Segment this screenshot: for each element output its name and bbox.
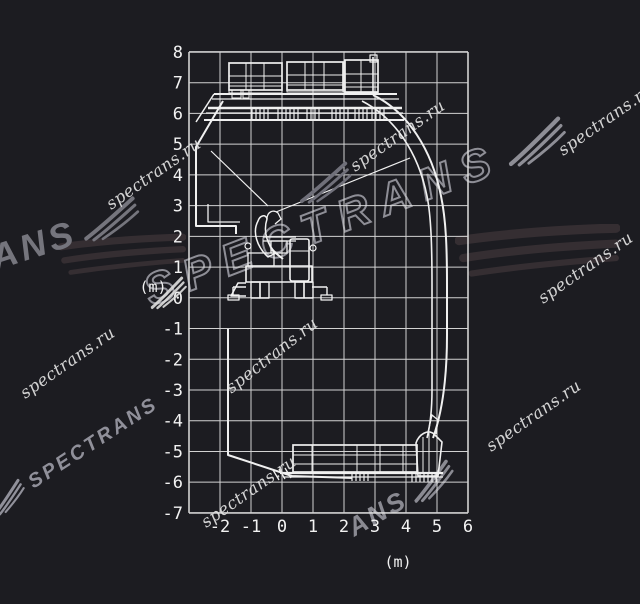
mirror-left <box>245 243 251 249</box>
tick-label: 4 <box>401 517 411 537</box>
working-range-chart: -2-10123456876543210-1-2-3-4-5-6-7 (m) (… <box>0 0 640 604</box>
envelope-left-step <box>208 204 240 222</box>
tick-label: 6 <box>173 104 183 124</box>
tick-label: -7 <box>163 504 183 524</box>
wheel <box>295 282 304 298</box>
tick-label: 6 <box>463 517 473 537</box>
tick-label: -2 <box>210 517 230 537</box>
tick-label: -3 <box>163 381 183 401</box>
wheel <box>304 282 313 298</box>
upper-railcar-2 <box>287 62 343 90</box>
tick-label: -5 <box>163 442 183 462</box>
tick-label: 2 <box>173 227 183 247</box>
excavator-drawing <box>228 211 332 300</box>
tick-label: 5 <box>173 135 183 155</box>
envelope-left-lower <box>228 329 352 478</box>
grid-lines <box>189 52 468 513</box>
tick-label: 3 <box>370 517 380 537</box>
tick-label: 3 <box>173 197 183 217</box>
x-axis-unit-label: (m) <box>384 553 411 571</box>
tick-label: 1 <box>308 517 318 537</box>
wheel <box>251 282 260 298</box>
tick-label: -4 <box>163 412 183 432</box>
lower-railcar-group <box>273 415 443 482</box>
envelope-inner-arc <box>362 101 432 438</box>
tick-label: -1 <box>241 517 261 537</box>
tick-label: 0 <box>277 517 287 537</box>
tick-label: 5 <box>432 517 442 537</box>
excavator-platform <box>246 266 312 282</box>
tick-label: -2 <box>163 350 183 370</box>
wheel <box>260 282 269 298</box>
tick-label: 8 <box>173 43 183 63</box>
boom-tip <box>267 211 281 224</box>
tick-label: -6 <box>163 473 183 493</box>
tick-label: 2 <box>339 517 349 537</box>
tick-label: -1 <box>163 320 183 340</box>
working-envelope-outline <box>196 55 447 478</box>
upper-track-rails <box>196 94 404 122</box>
envelope-outer-arc <box>373 95 447 438</box>
diagram-stage: SPECTRANS ANS SPECTRANS ANS <box>0 0 640 604</box>
tick-label: 7 <box>173 74 183 94</box>
engine-hood <box>248 253 274 266</box>
excavator-cab <box>290 239 309 281</box>
axis-tick-labels: -2-10123456876543210-1-2-3-4-5-6-7 <box>163 43 474 537</box>
tick-label: 4 <box>173 166 183 186</box>
